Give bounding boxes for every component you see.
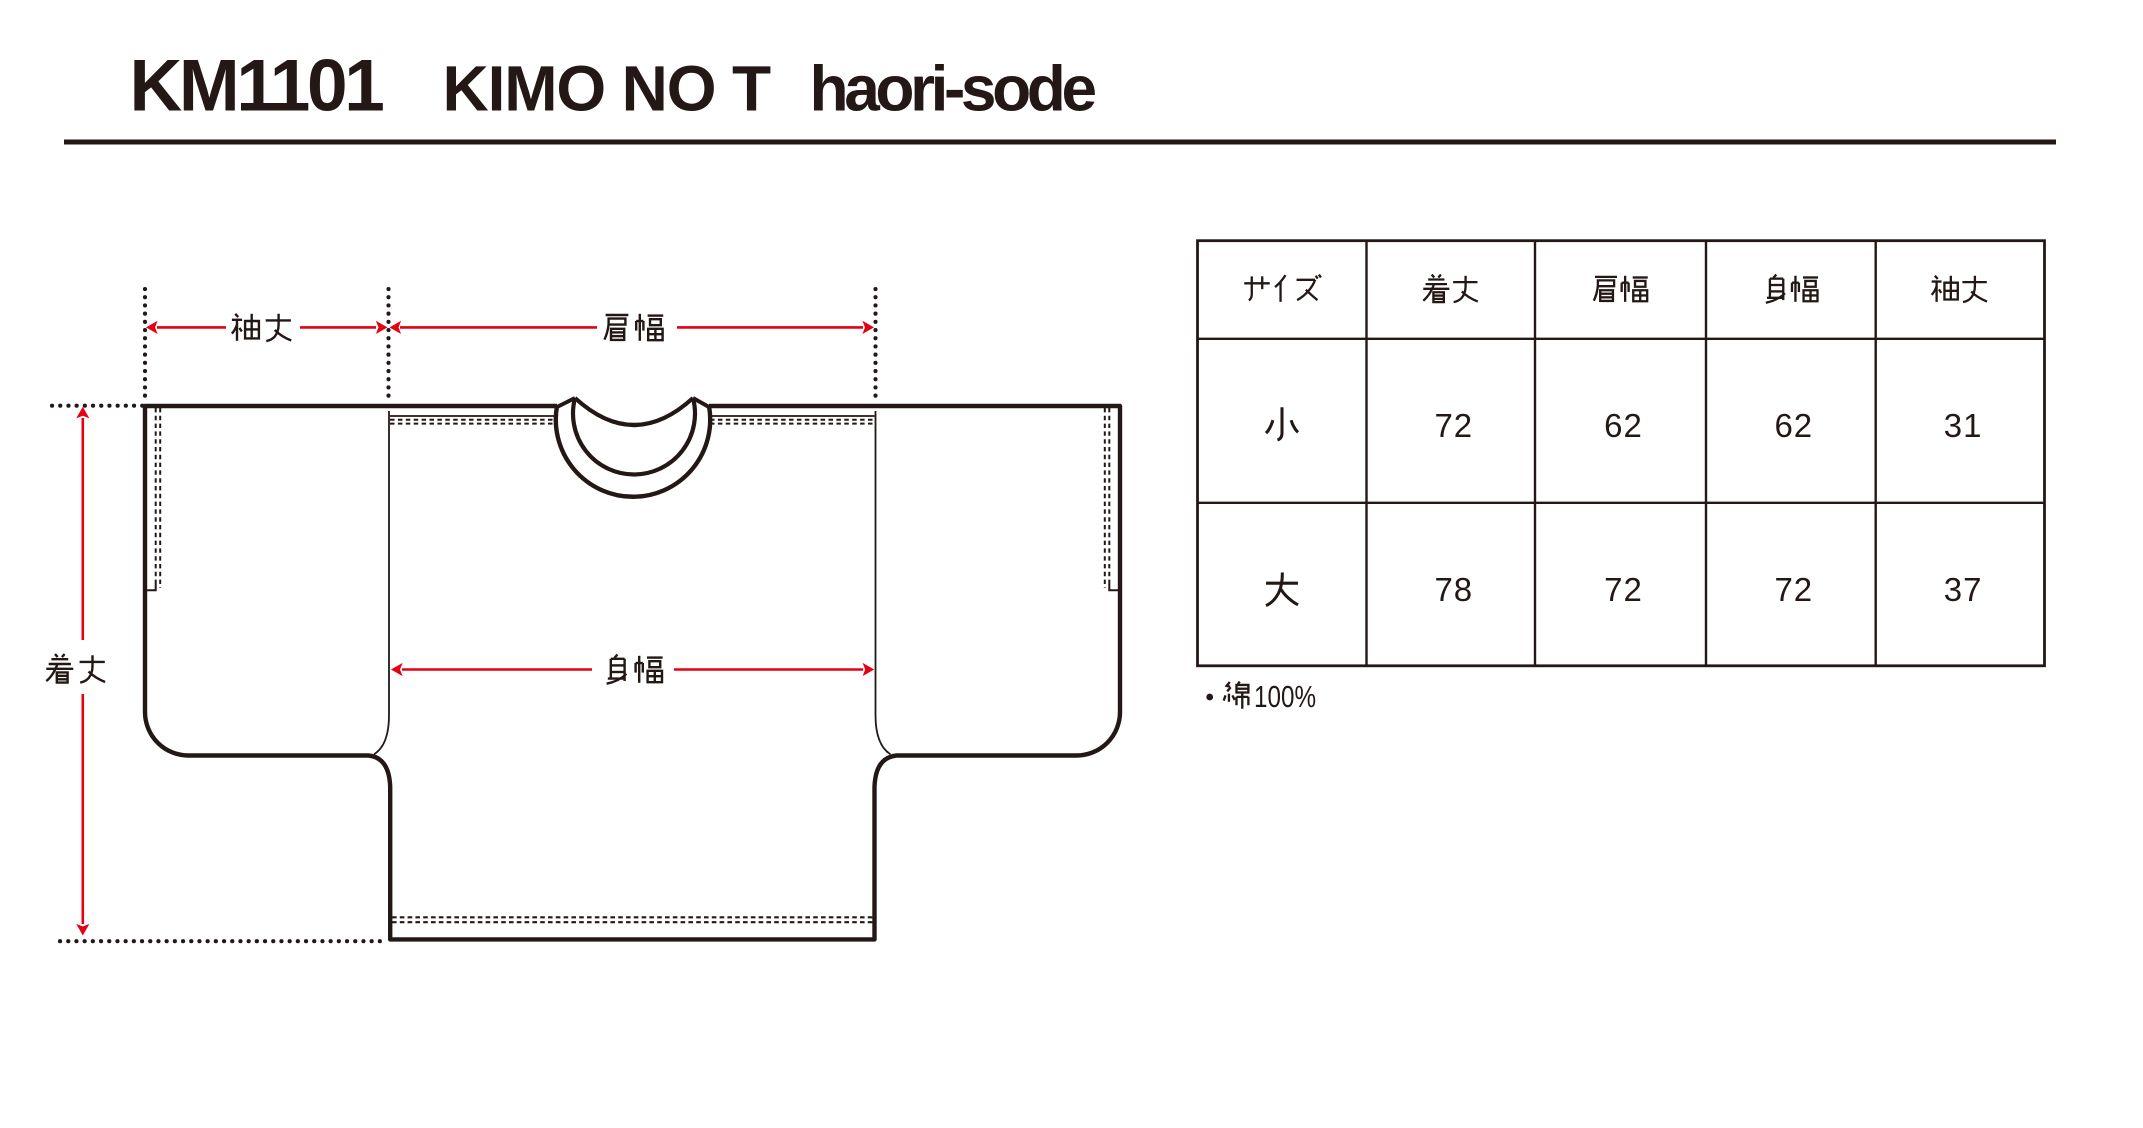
svg-text:72: 72 [1774,571,1813,608]
svg-text:KM1101: KM1101 [130,46,384,127]
svg-text:100%: 100% [1254,679,1316,714]
svg-text:62: 62 [1774,407,1813,444]
svg-text:72: 72 [1434,407,1473,444]
svg-text:haori-sode: haori-sode [810,53,1096,125]
svg-text:37: 37 [1944,571,1983,608]
svg-text:31: 31 [1944,407,1983,444]
svg-text:72: 72 [1604,571,1643,608]
svg-text:62: 62 [1604,407,1643,444]
svg-text:KIMO NO T: KIMO NO T [443,53,771,125]
svg-text:78: 78 [1434,571,1473,608]
